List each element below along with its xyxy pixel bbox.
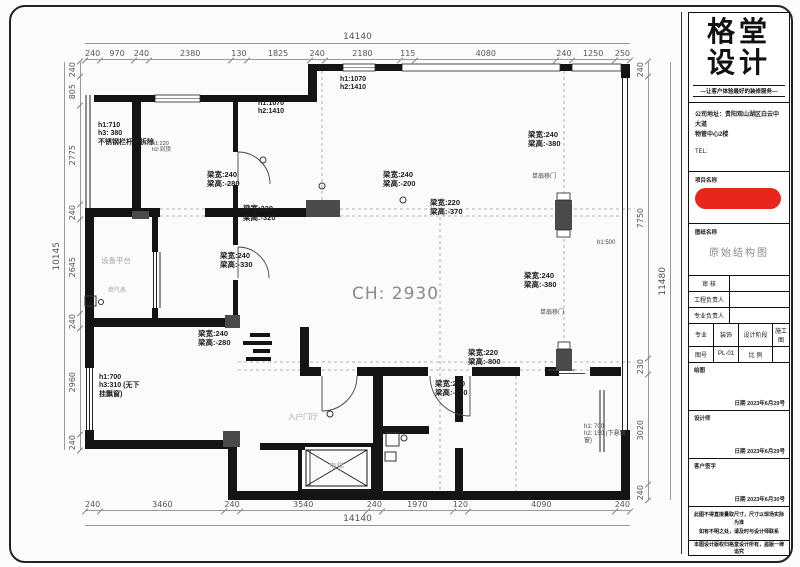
project-name-cell: 项目名称 <box>689 172 789 224</box>
logo-cell: 格堂 设计 —让客户体验最好的装修服务— <box>689 13 789 103</box>
beam-label: 梁宽:240梁高:-200 <box>383 171 416 189</box>
client-signature-cell: 客户签字 日期 2023年6月30号 <box>689 459 789 507</box>
logo-line1: 格堂 <box>707 17 771 48</box>
drawing-no-label: 图号 <box>689 347 714 362</box>
company-logo: 格堂 设计 <box>707 18 771 80</box>
dim-top-total: 14140 <box>85 30 630 44</box>
beam-label: 梁宽:240梁高:-180 <box>435 380 468 398</box>
dim-value: 11480 <box>658 267 668 296</box>
dim-strip-right: 240 7750 230 3020 240 <box>634 62 649 500</box>
dim-segment: 2775 <box>66 106 81 205</box>
beam-label: 梁宽:240梁高:-380 <box>528 131 561 149</box>
dim-segment: 2180 <box>325 46 400 60</box>
company-address: 公司地址：贵阳观山湖区白云中大道物管中心2楼 <box>695 111 783 140</box>
balcony-height-sub-label: h1:220h2:到顶 <box>152 141 171 154</box>
dim-segment: 230 <box>634 359 649 374</box>
scale-label: 比 例 <box>739 347 773 362</box>
designer-date: 日期 2023年6月29号 <box>735 447 785 455</box>
review-value <box>730 276 789 291</box>
window-height-label: h1:1070h2:1410 <box>340 76 366 93</box>
drawing-no-value: PL-01 <box>714 347 739 362</box>
note-line1: 此图不得直接量取尺寸，尺寸以现场实际为准 <box>692 511 786 528</box>
dim-segment: 240 <box>634 485 649 500</box>
sheet-name: 原始结构图 <box>695 244 783 259</box>
window-height-label: h1:1070h2:1410 <box>258 100 284 117</box>
draft-date: 日期 2023年6月29号 <box>735 399 785 407</box>
window-height-label: h1: 700h2: 150 (下悬飘窗) <box>584 424 626 445</box>
dim-segment: 1970 <box>382 497 453 511</box>
ceiling-height-label: CH: 2930 <box>352 284 439 304</box>
company-tel: TEL: <box>695 148 783 158</box>
review-label: 审 核 <box>689 276 730 291</box>
sheet-name-cell: 图纸名称 原始结构图 <box>689 224 789 276</box>
dim-segment: 805 <box>66 77 81 106</box>
sliding-door-label: 单扇移门 <box>532 174 556 181</box>
dim-segment: 120 <box>453 497 468 511</box>
title-block: 格堂 设计 —让客户体验最好的装修服务— 公司地址：贵阳观山湖区白云中大道物管中… <box>688 12 790 556</box>
dim-value: 14140 <box>343 33 372 43</box>
dim-segment: 240 <box>66 205 81 220</box>
entry-foyer-label: 入户门厅 <box>288 413 318 422</box>
project-name-label: 项目名称 <box>695 176 783 184</box>
pm-row: 工程负责人 <box>689 292 789 308</box>
designer-label: 设计师 <box>694 414 784 422</box>
major-stage-row: 专业 装饰 设计阶段 施工图 <box>689 324 789 347</box>
lead-row: 专业负责人 <box>689 308 789 324</box>
client-signature-date: 日期 2023年6月30号 <box>735 495 785 503</box>
lead-value <box>730 308 789 323</box>
stage-label: 设计阶段 <box>739 324 773 346</box>
window-height-label: h1:500 <box>597 240 615 247</box>
dim-segment: 2380 <box>149 46 231 60</box>
dim-segment: 1250 <box>572 46 615 60</box>
company-info-cell: 公司地址：贵阳观山湖区白云中大道物管中心2楼 TEL: <box>689 103 789 172</box>
window-symbols <box>86 64 628 452</box>
draft-cell: 绘图 日期 2023年6月29号 <box>689 363 789 411</box>
dim-segment: 240 <box>85 497 100 511</box>
designer-cell: 设计师 日期 2023年6月29号 <box>689 411 789 459</box>
dim-segment: 240 <box>134 46 149 60</box>
dim-segment: 240 <box>615 497 630 511</box>
window-height-label: h1:700h3:310 (无下挂飘窗) <box>99 374 139 399</box>
gas-meter-label: 燃气表 <box>108 288 126 295</box>
elevator-label: 电梯 <box>329 462 344 471</box>
dim-segment: 970 <box>100 46 134 60</box>
dim-segment: 240 <box>224 497 239 511</box>
dim-segment: 3020 <box>634 375 649 485</box>
dim-segment: 240 <box>310 46 325 60</box>
beam-label: 梁宽:240梁高:-380 <box>524 272 557 290</box>
dim-right-total: 11480 <box>656 62 671 500</box>
dim-strip-left: 240 805 2775 240 2645 240 2960 240 <box>66 62 81 450</box>
stage-value: 施工图 <box>773 324 789 346</box>
beam-label: 梁宽:220梁高:-370 <box>430 199 463 217</box>
dim-segment: 2960 <box>66 329 81 434</box>
dim-segment: 2645 <box>66 220 81 314</box>
number-scale-row: 图号 PL-01 比 例 <box>689 347 789 363</box>
dim-left-total: 10145 <box>50 62 65 450</box>
dim-segment: 240 <box>634 62 649 77</box>
dim-strip-top: 240 970 240 2380 130 1825 240 2180 115 4… <box>85 46 630 60</box>
note-line2: 如有不明之处，请及时与设计师联系 <box>699 528 779 537</box>
dim-segment: 1825 <box>247 46 310 60</box>
dim-segment: 3460 <box>100 497 224 511</box>
beam-label: 梁宽:240梁高:-330 <box>220 252 253 270</box>
balcony-height-label: h1:710h3: 380不锈钢栏杆可拆除 <box>98 122 154 147</box>
dim-segment: 240 <box>85 46 100 60</box>
copyright-cell: 本图设计版权归格堂设计所有，盗版一律追究 <box>689 541 789 555</box>
beam-label: 梁宽:220梁高:-800 <box>468 349 501 367</box>
dim-segment: 130 <box>231 46 246 60</box>
draft-label: 绘图 <box>694 366 784 374</box>
dim-segment: 240 <box>66 62 81 77</box>
beam-label: 梁宽:240梁高:-280 <box>198 330 231 348</box>
lead-label: 专业负责人 <box>689 308 730 323</box>
sheet-name-label: 图纸名称 <box>695 228 783 236</box>
beam-label: 梁宽:220梁高:-320 <box>243 205 276 223</box>
client-signature-label: 客户签字 <box>694 462 784 470</box>
dim-value: 14140 <box>343 515 372 525</box>
notes-cell: 此图不得直接量取尺寸，尺寸以现场实际为准 如有不明之处，请及时与设计师联系 <box>689 507 789 542</box>
dim-bottom-total: 14140 <box>85 512 630 526</box>
dim-strip-bottom: 240 3460 240 3540 240 1970 120 4090 240 <box>85 497 630 511</box>
dim-segment: 115 <box>400 46 415 60</box>
dim-segment: 7750 <box>634 77 649 359</box>
dim-segment: 3540 <box>240 497 367 511</box>
sliding-door-label: 单扇移门 <box>540 310 564 317</box>
major-value: 装饰 <box>714 324 739 346</box>
review-row: 审 核 <box>689 276 789 292</box>
dim-segment: 240 <box>367 497 382 511</box>
project-name-redacted <box>695 188 781 209</box>
copyright-text: 本图设计版权归格堂设计所有，盗版一律追究 <box>692 541 786 555</box>
dim-segment: 240 <box>556 46 571 60</box>
dim-value: 10145 <box>52 242 62 271</box>
major-label: 专业 <box>689 324 714 346</box>
furniture-bars <box>243 333 272 361</box>
dim-segment: 250 <box>615 46 630 60</box>
dim-segment: 4080 <box>415 46 556 60</box>
pm-label: 工程负责人 <box>689 292 730 307</box>
equipment-platform-label: 设备平台 <box>101 257 131 266</box>
company-slogan: —让客户体验最好的装修服务— <box>693 85 785 97</box>
beam-label: 梁宽:240梁高:-280 <box>207 171 240 189</box>
dim-segment: 4090 <box>468 497 615 511</box>
dim-segment: 240 <box>66 435 81 450</box>
scale-value <box>773 347 789 362</box>
pm-value <box>730 292 789 307</box>
logo-line2: 设计 <box>707 48 771 79</box>
